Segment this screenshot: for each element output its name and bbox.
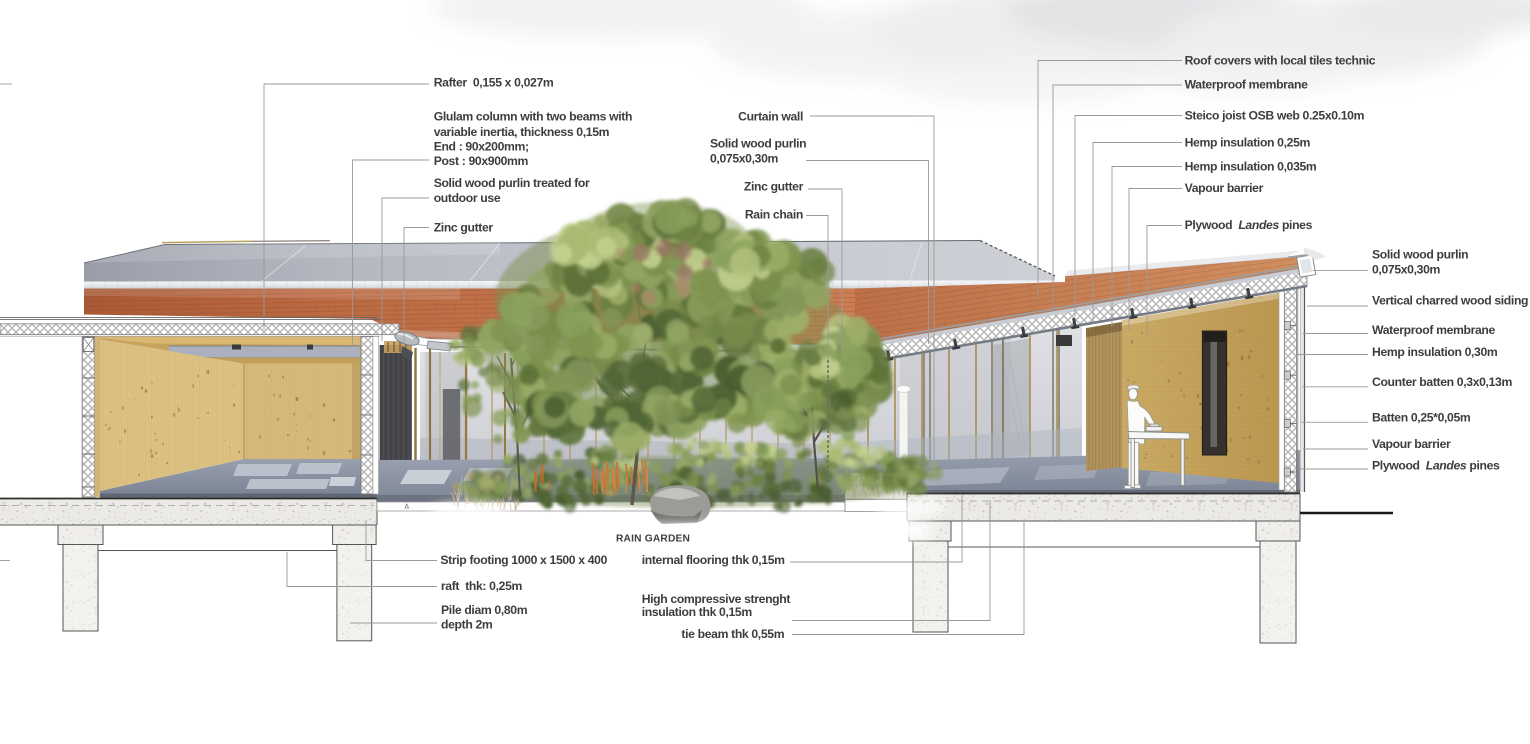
svg-text:RAIN GARDEN: RAIN GARDEN xyxy=(616,533,690,544)
svg-text:depth 2m: depth 2m xyxy=(441,618,493,632)
svg-text:Counter batten 0,3x0,13m: Counter batten 0,3x0,13m xyxy=(1372,375,1512,389)
svg-text:Plywood Landes pines: Plywood Landes pines xyxy=(1372,458,1500,472)
svg-text:Vertical charred wood siding: Vertical charred wood siding xyxy=(1372,294,1528,308)
svg-text:Rain chain: Rain chain xyxy=(745,207,803,221)
svg-text:Roof covers with local tiles t: Roof covers with local tiles technic xyxy=(1185,54,1376,68)
svg-text:Rafter 0,155 x 0,027m: Rafter 0,155 x 0,027m xyxy=(434,76,554,90)
svg-text:End : 90x200mm;: End : 90x200mm; xyxy=(434,140,529,154)
svg-text:insulation thk 0,15m: insulation thk 0,15m xyxy=(642,605,753,619)
svg-text:Hemp insulation 0,25m: Hemp insulation 0,25m xyxy=(1185,136,1311,150)
svg-text:Hemp insulation 0,035m: Hemp insulation 0,035m xyxy=(1185,159,1317,173)
svg-text:Vapour barrier: Vapour barrier xyxy=(1372,437,1451,451)
svg-text:Vapour barrier: Vapour barrier xyxy=(1185,181,1264,195)
svg-text:High compressive strenght: High compressive strenght xyxy=(642,592,791,606)
svg-text:Waterproof membrane: Waterproof membrane xyxy=(1185,77,1308,91)
svg-text:outdoor use: outdoor use xyxy=(434,191,501,205)
svg-text:Hemp insulation 0,30m: Hemp insulation 0,30m xyxy=(1372,345,1498,359)
svg-text:Post : 90x900mm: Post : 90x900mm xyxy=(434,154,529,168)
svg-text:Solid wood purlin treated for: Solid wood purlin treated for xyxy=(434,176,590,190)
svg-text:tie beam thk 0,55m: tie beam thk 0,55m xyxy=(681,627,784,641)
svg-text:Glulam column with two beams w: Glulam column with two beams with xyxy=(434,110,632,124)
svg-text:Strip footing 1000 x 1500 x 40: Strip footing 1000 x 1500 x 400 xyxy=(440,553,607,567)
svg-text:Plywood Landes pines: Plywood Landes pines xyxy=(1185,218,1313,232)
svg-text:Batten 0,25*0,05m: Batten 0,25*0,05m xyxy=(1372,410,1471,424)
svg-text:Waterproof membrane: Waterproof membrane xyxy=(1372,323,1495,337)
svg-text:Solid wood purlin: Solid wood purlin xyxy=(1372,247,1468,261)
svg-text:raft thk: 0,25m: raft thk: 0,25m xyxy=(441,579,523,593)
svg-text:internal flooring thk 0,15m: internal flooring thk 0,15m xyxy=(642,553,785,567)
svg-text:0,075x0,30m: 0,075x0,30m xyxy=(710,151,778,165)
svg-text:variable inertia, thickness 0,: variable inertia, thickness 0,15m xyxy=(434,125,610,139)
svg-text:Zinc gutter: Zinc gutter xyxy=(744,180,804,194)
svg-text:Curtain wall: Curtain wall xyxy=(738,110,803,124)
svg-text:0,075x0,30m: 0,075x0,30m xyxy=(1372,262,1440,276)
svg-text:Solid wood purlin: Solid wood purlin xyxy=(710,136,806,150)
svg-text:Zinc gutter: Zinc gutter xyxy=(434,221,494,235)
svg-text:Steico joist OSB web 0.25x0.10: Steico joist OSB web 0.25x0.10m xyxy=(1185,108,1365,122)
svg-text:Pile diam 0,80m: Pile diam 0,80m xyxy=(441,603,528,617)
